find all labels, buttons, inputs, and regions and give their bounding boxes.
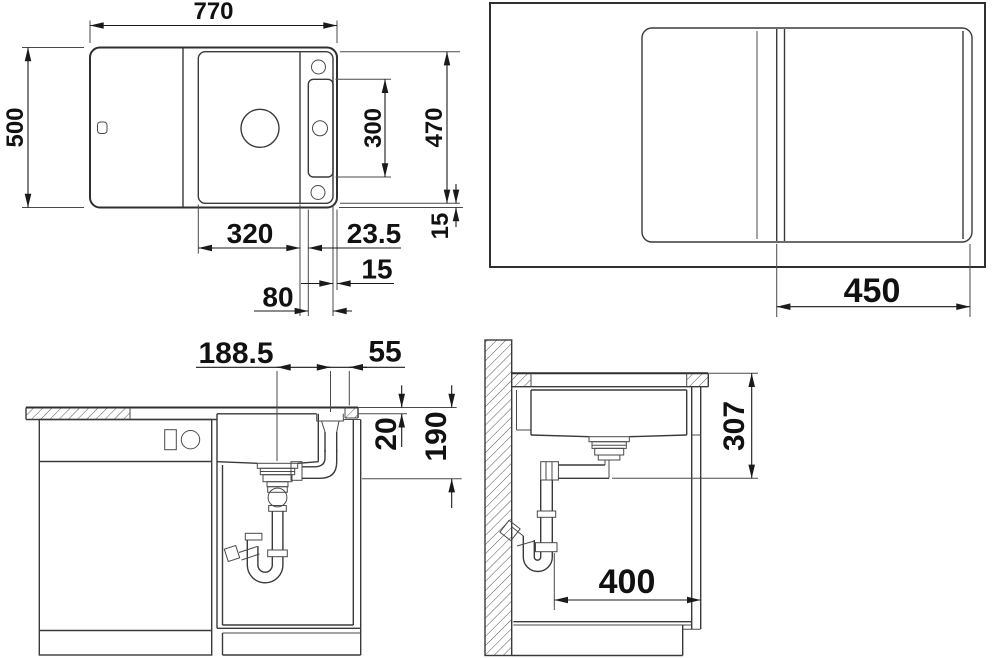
dim-drain-to-hole: 188.5 [196, 337, 331, 461]
dim-label-307: 307 [718, 401, 751, 451]
dim-label-15: 15 [361, 254, 392, 285]
dim-label-300: 300 [360, 108, 387, 148]
drain-trap [224, 463, 297, 582]
dim-bottom-rows: 320 23.5 15 80 [198, 205, 401, 317]
dim-top-to-drain: 307 [612, 373, 758, 478]
bowl-section [517, 390, 687, 437]
panel-square-icon [165, 430, 177, 450]
worktop-outline [490, 3, 985, 267]
front-view: 188.5 55 20 190 [26, 336, 462, 656]
worktop-section-hatch [26, 408, 130, 420]
dim-wall-to-front: 400 [554, 553, 700, 610]
wall-section [485, 340, 512, 656]
tap-hole-middle [313, 121, 328, 136]
panel-circle-icon [181, 431, 199, 449]
dim-label-15-margin: 15 [427, 213, 454, 240]
sink-cabinet-section [217, 414, 361, 655]
dim-label-190: 190 [420, 411, 453, 461]
dim-label-23.5: 23.5 [347, 218, 402, 249]
deck-recess-and-pipe [291, 414, 343, 481]
dim-label-470: 470 [421, 107, 448, 147]
left-cabinet [39, 420, 211, 656]
dim-label-188.5: 188.5 [198, 337, 273, 370]
technical-drawing: 770 500 470 300 15 [0, 0, 1000, 658]
side-view: 307 400 [485, 340, 758, 656]
dim-label-20: 20 [370, 417, 403, 450]
worktop-section [512, 373, 709, 386]
dim-label-320: 320 [227, 218, 274, 249]
trap-side-nut [224, 545, 239, 561]
dim-label-55: 55 [368, 336, 401, 369]
drain-trap [500, 437, 629, 572]
dim-label-450: 450 [844, 272, 901, 310]
worktop-corner-piece [345, 408, 358, 419]
dim-cutout-depth: 470 [340, 52, 460, 204]
dim-board-width: 450 [777, 244, 970, 317]
bowl-section [217, 414, 318, 464]
tap-hole-bottom [311, 186, 325, 200]
dim-label-500: 500 [2, 107, 29, 147]
drain-hole [241, 109, 279, 147]
plan-view: 770 500 470 300 15 [2, 0, 463, 316]
dim-overall-depth: 500 [2, 48, 84, 208]
drawing-canvas: 770 500 470 300 15 [0, 0, 1000, 658]
dim-overall-width: 770 [90, 0, 337, 43]
sink-outline [642, 28, 972, 242]
board-handle-slot [98, 122, 108, 134]
dim-deck-length: 300 [336, 79, 392, 177]
dim-hole-to-edge: 55 [331, 336, 406, 406]
dim-label-400: 400 [599, 563, 656, 601]
dim-label-80: 80 [262, 282, 293, 313]
plan-board-view: 450 [490, 3, 985, 317]
dim-label-770: 770 [193, 0, 233, 25]
tap-hole-top [312, 60, 326, 74]
